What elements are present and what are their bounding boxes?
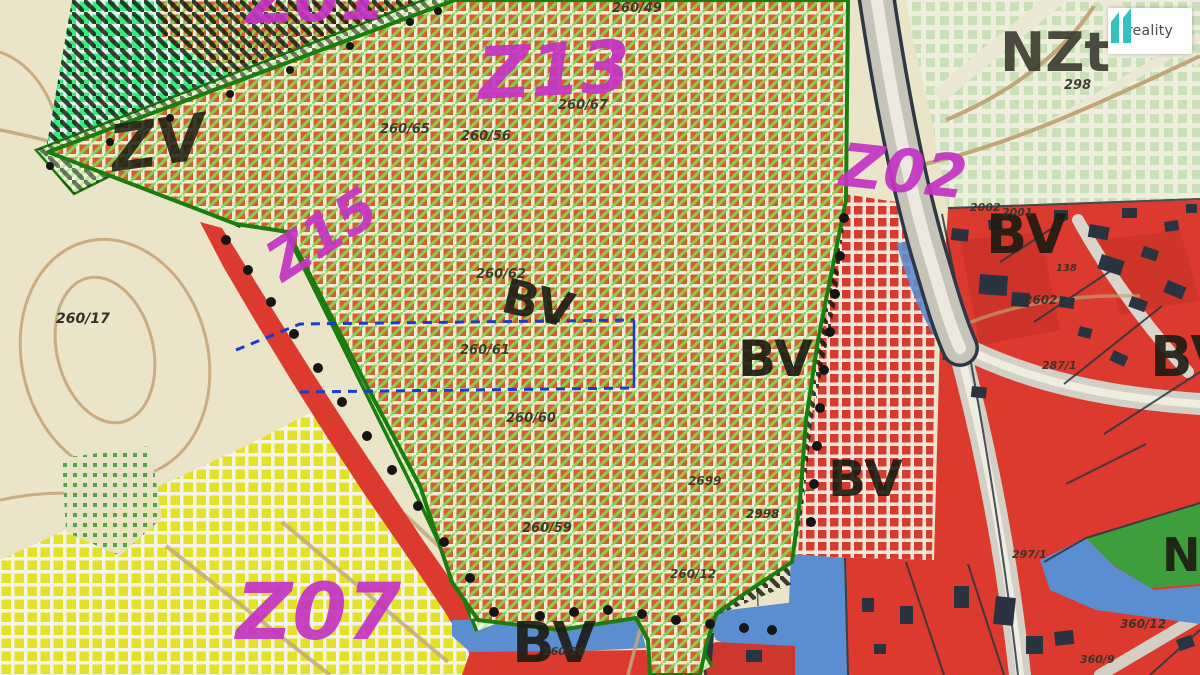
- blue-band-left: [786, 554, 848, 675]
- zoning-map-canvas: [0, 0, 1200, 675]
- reality-logo[interactable]: reality: [1108, 8, 1192, 54]
- logo-11-icon: [1108, 8, 1134, 44]
- map-viewport[interactable]: Z01 Z13 Z02 Z15 Z07 NZt ZV BV BV BV BV B…: [0, 0, 1200, 675]
